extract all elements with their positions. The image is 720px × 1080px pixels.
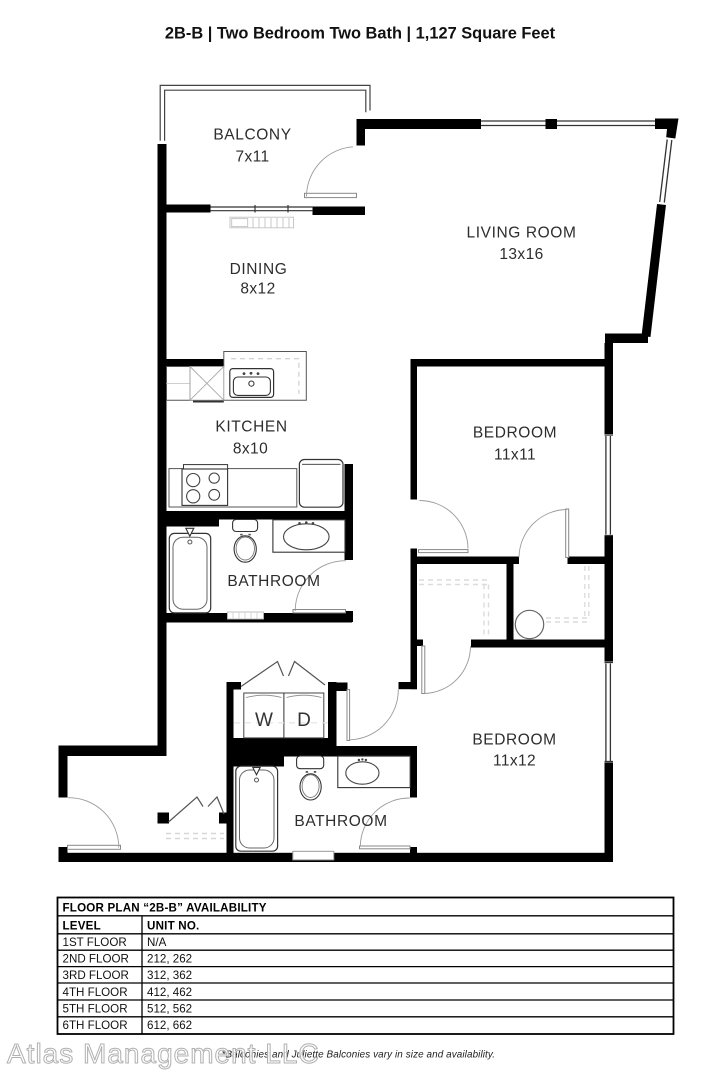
- svg-text:KITCHEN: KITCHEN: [215, 419, 287, 436]
- svg-text:BEDROOM: BEDROOM: [472, 732, 556, 749]
- svg-text:8x10: 8x10: [233, 441, 268, 458]
- svg-text:1ST FLOOR: 1ST FLOOR: [63, 936, 127, 949]
- svg-text:D: D: [297, 710, 311, 731]
- svg-text:7x11: 7x11: [235, 149, 269, 166]
- svg-text:FLOOR PLAN “2B-B” AVAILABILITY: FLOOR PLAN “2B-B” AVAILABILITY: [63, 901, 267, 914]
- svg-text:6TH FLOOR: 6TH FLOOR: [63, 1019, 128, 1032]
- svg-text:BALCONY: BALCONY: [213, 127, 291, 144]
- svg-text:11x11: 11x11: [494, 447, 536, 464]
- svg-text:312, 362: 312, 362: [147, 969, 192, 982]
- svg-text:W: W: [255, 710, 273, 731]
- svg-text:LIVING ROOM: LIVING ROOM: [467, 225, 577, 242]
- svg-text:3RD FLOOR: 3RD FLOOR: [63, 969, 129, 982]
- svg-text:8x12: 8x12: [240, 281, 275, 298]
- svg-text:4TH FLOOR: 4TH FLOOR: [63, 986, 128, 999]
- svg-text:BATHROOM: BATHROOM: [294, 813, 387, 830]
- svg-text:13x16: 13x16: [499, 246, 543, 263]
- svg-text:2ND FLOOR: 2ND FLOOR: [63, 953, 129, 966]
- svg-text:LEVEL: LEVEL: [63, 919, 101, 932]
- svg-text:BEDROOM: BEDROOM: [473, 425, 557, 442]
- svg-text:DINING: DINING: [230, 261, 288, 278]
- svg-text:5TH FLOOR: 5TH FLOOR: [63, 1002, 128, 1015]
- svg-text:612, 662: 612, 662: [147, 1019, 192, 1032]
- svg-text:412, 462: 412, 462: [147, 986, 192, 999]
- svg-text:Atlas Management LLC: Atlas Management LLC: [7, 1038, 320, 1069]
- svg-text:11x12: 11x12: [493, 753, 536, 770]
- svg-text:BATHROOM: BATHROOM: [227, 573, 320, 590]
- svg-text:212, 262: 212, 262: [147, 953, 192, 966]
- svg-text:UNIT NO.: UNIT NO.: [147, 919, 199, 932]
- svg-text:2B-B | Two Bedroom Two Bath |: 2B-B | Two Bedroom Two Bath | 1,127 Squa…: [165, 24, 556, 42]
- svg-text:N/A: N/A: [147, 936, 167, 949]
- svg-text:512, 562: 512, 562: [147, 1002, 192, 1015]
